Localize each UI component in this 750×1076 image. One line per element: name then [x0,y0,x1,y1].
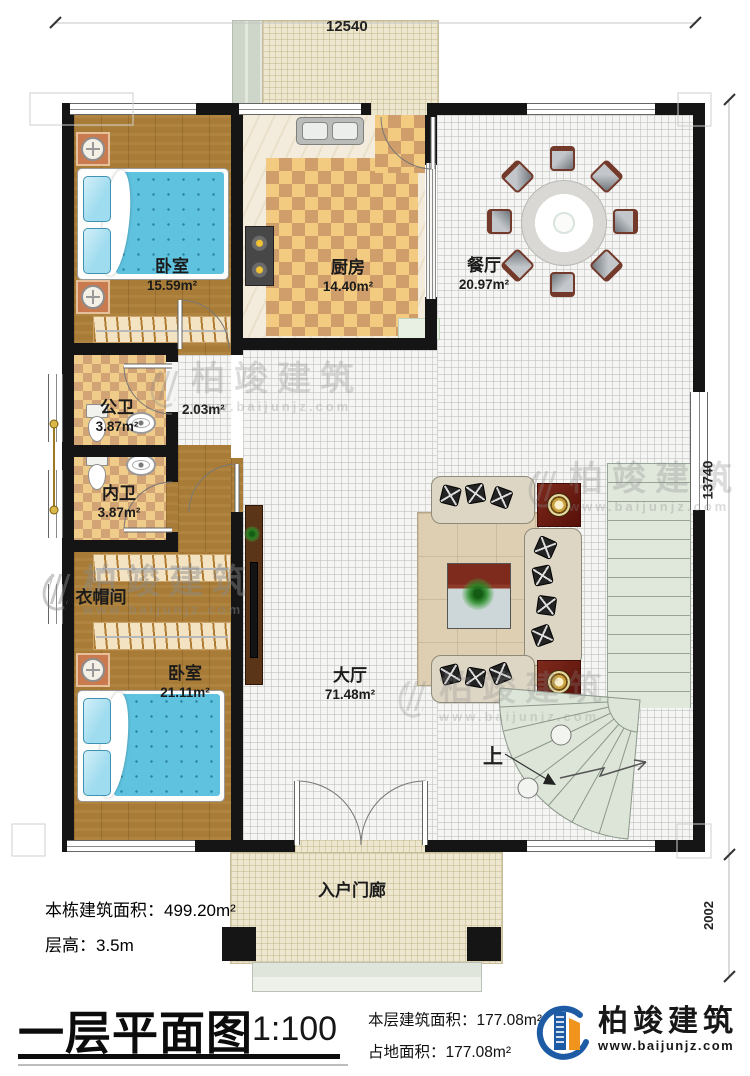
plant [244,526,260,542]
footprint-area-text: 占地面积：177.08m² [368,1040,511,1062]
bed-pillow [83,176,111,222]
wall-segment [62,540,178,552]
wall-segment [231,115,243,343]
window [48,374,63,442]
dining-chair [550,146,575,171]
dining-chair [550,272,575,297]
stairs-up-label: 上 [483,740,503,769]
entry-porch-floor [230,852,503,964]
window [527,840,655,852]
window [239,103,361,115]
eave-corner [12,824,45,856]
nightstand [76,280,110,314]
window [527,103,655,115]
porch-column [467,927,501,961]
porch-column [222,927,256,961]
corridor-area-label: 2.03m² [182,402,225,417]
door-opening [166,362,178,412]
door-opening [231,458,243,512]
dim-tick [724,94,735,105]
dimension-porch-height: 2002 [701,901,716,930]
kitchen-rug [266,158,418,336]
bed-pillow [83,698,111,744]
sofa-cushion [536,595,557,616]
end-table [537,483,581,527]
cloakroom-wardrobe [93,622,231,650]
wall-segment [62,103,74,852]
note-floor-height: 层高：3.5m [45,931,134,956]
dim-tick [724,971,735,982]
wall-segment [231,338,437,350]
nightstand [76,653,110,687]
floor-plan-page: 柏竣建筑 www.baijunjz.com 柏竣建筑 www.baijunjz.… [0,0,750,1076]
floor-area-text: 本层建筑面积：177.08m² [368,1008,542,1030]
dining-chair [613,209,638,234]
wall-segment [425,115,437,165]
door-opening [371,103,427,115]
dim-tick [690,17,701,28]
room-label-bedroom1: 卧室 15.59m² [147,257,197,294]
cloakroom-wardrobe [93,554,231,582]
room-label-wc-private: 内卫 3.87m² [98,484,141,521]
room-label-cloakroom: 衣帽间 [76,588,127,609]
title-underline-thin [18,1064,348,1066]
sliding-door [426,163,436,299]
room-label-hall: 大厅 71.48m² [325,666,375,703]
room-label-dining: 餐厅 20.97m² [459,256,509,293]
window [48,470,63,538]
bed-mattress [114,694,220,796]
dimension-right-height: 13740 [699,461,715,500]
room-label-kitchen: 厨房 14.40m² [323,258,373,295]
brand-text-block: 柏竣建筑 www.baijunjz.com [598,1006,738,1053]
dining-table [521,180,607,266]
porch-steps [252,962,482,992]
room-label-wc-public: 公卫 3.87m² [96,398,139,435]
door-opening [166,482,178,532]
kitchen-sink [296,117,364,145]
door-opening [295,840,425,852]
bed-pillow [83,750,111,796]
bathroom-sink [126,454,156,476]
brand-logo-icon [532,1002,594,1068]
sofa-cushion [531,564,554,587]
bed-pillow [83,228,111,274]
dim-tick [724,849,735,860]
corridor-floor [178,355,231,445]
hall-floor [243,350,437,840]
wardrobe [93,316,231,343]
end-table [537,660,581,704]
sofa-cushion [464,482,486,504]
dimension-top-width: 12540 [326,18,368,35]
wall-segment [62,445,166,457]
coffee-table-plant [462,578,494,610]
sofa-cushion [464,666,486,688]
kitchen-door-tiles [375,115,425,173]
title-underline [18,1054,340,1059]
brand-logo [532,1002,594,1068]
staircase-flight [607,463,691,708]
window [48,584,63,624]
window [70,103,196,115]
kitchen-stove [245,226,274,286]
sheet-scale: 1:100 [252,1010,337,1049]
top-terrace-strips [232,20,264,106]
note-total-building-area: 本栋建筑面积：499.20m² [45,896,236,921]
room-label-porch: 入户门廊 [318,881,386,902]
dim-tick [50,17,61,28]
room-label-bedroom2: 卧室 21.11m² [160,664,210,701]
tv [250,562,258,658]
nightstand [76,132,110,166]
brand-name: 柏竣建筑 [598,1006,738,1038]
dining-chair [487,209,512,234]
brand-website: www.baijunjz.com [598,1038,738,1053]
corridor-wood-floor [178,445,231,552]
door-opening [178,343,231,355]
wall-segment [231,512,243,840]
window [67,840,195,852]
